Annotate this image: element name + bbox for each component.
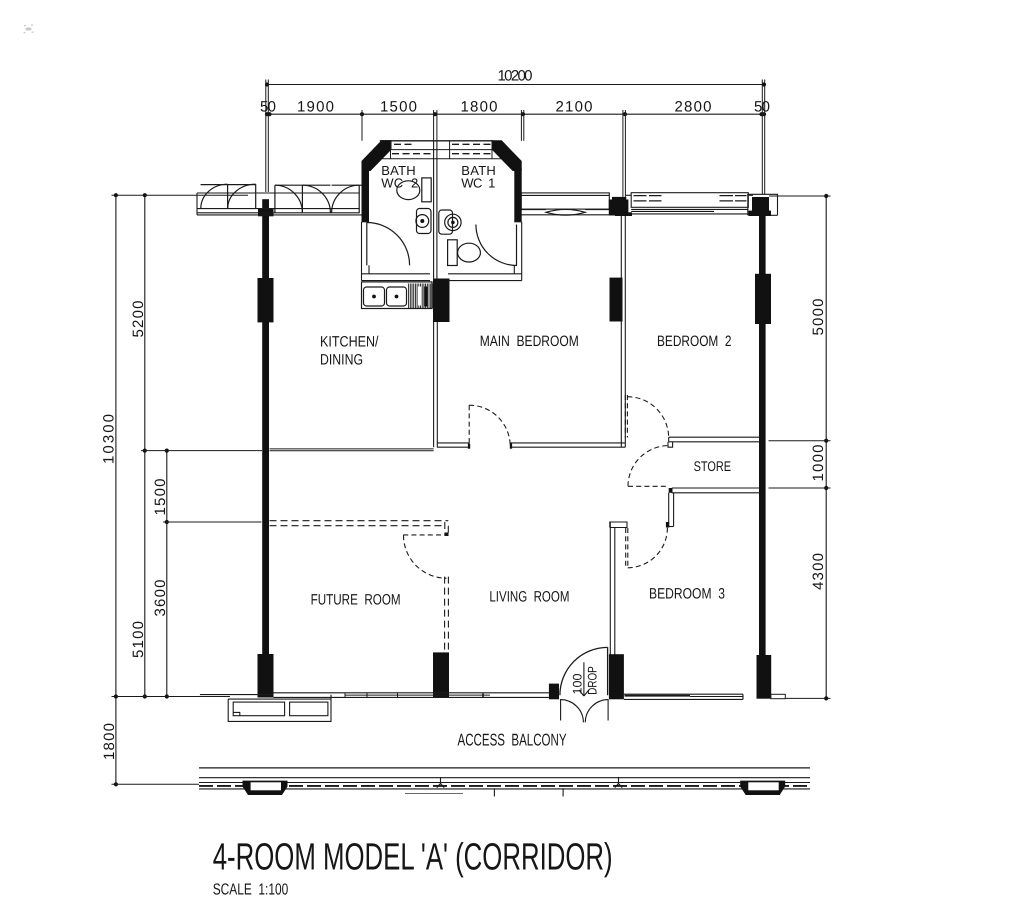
svg-text:5200: 5200 [130, 301, 147, 338]
svg-text:100: 100 [571, 673, 585, 694]
svg-text:WC 2: WC 2 [381, 175, 418, 190]
svg-text:FUTURE ROOM: FUTURE ROOM [311, 592, 401, 609]
svg-text:2100: 2100 [556, 99, 593, 116]
svg-text:10200: 10200 [498, 68, 533, 85]
svg-text:KITCHEN/: KITCHEN/ [320, 334, 379, 351]
svg-text:STORE: STORE [694, 458, 731, 474]
svg-text:10300: 10300 [101, 414, 118, 464]
svg-text:4-ROOM MODEL 'A' (CORRIDOR): 4-ROOM MODEL 'A' (CORRIDOR) [213, 837, 613, 879]
svg-text:MAIN BEDROOM: MAIN BEDROOM [480, 333, 579, 350]
svg-text:WC 1: WC 1 [461, 175, 495, 190]
svg-text:1900: 1900 [297, 99, 334, 116]
svg-text:DINING: DINING [320, 351, 363, 368]
svg-text:BEDROOM 3: BEDROOM 3 [649, 586, 725, 603]
svg-text:3600: 3600 [152, 580, 169, 617]
svg-text:1500: 1500 [380, 99, 417, 116]
svg-text:1500: 1500 [152, 479, 169, 516]
svg-text:5100: 5100 [130, 621, 147, 658]
svg-text:50: 50 [260, 99, 276, 116]
svg-text:4300: 4300 [810, 553, 827, 590]
svg-text:LIVING ROOM: LIVING ROOM [489, 589, 569, 606]
svg-text:1800: 1800 [101, 723, 118, 760]
svg-text:BEDROOM 2: BEDROOM 2 [657, 333, 732, 350]
svg-text:1800: 1800 [461, 99, 498, 116]
svg-text:DROP: DROP [586, 666, 600, 695]
svg-text:1000: 1000 [810, 445, 827, 482]
svg-text:5000: 5000 [810, 299, 827, 336]
svg-text:ACCESS BALCONY: ACCESS BALCONY [458, 731, 567, 750]
svg-text:SCALE 1:100: SCALE 1:100 [213, 882, 289, 899]
svg-text:50: 50 [754, 99, 770, 116]
svg-text:2800: 2800 [675, 99, 712, 116]
